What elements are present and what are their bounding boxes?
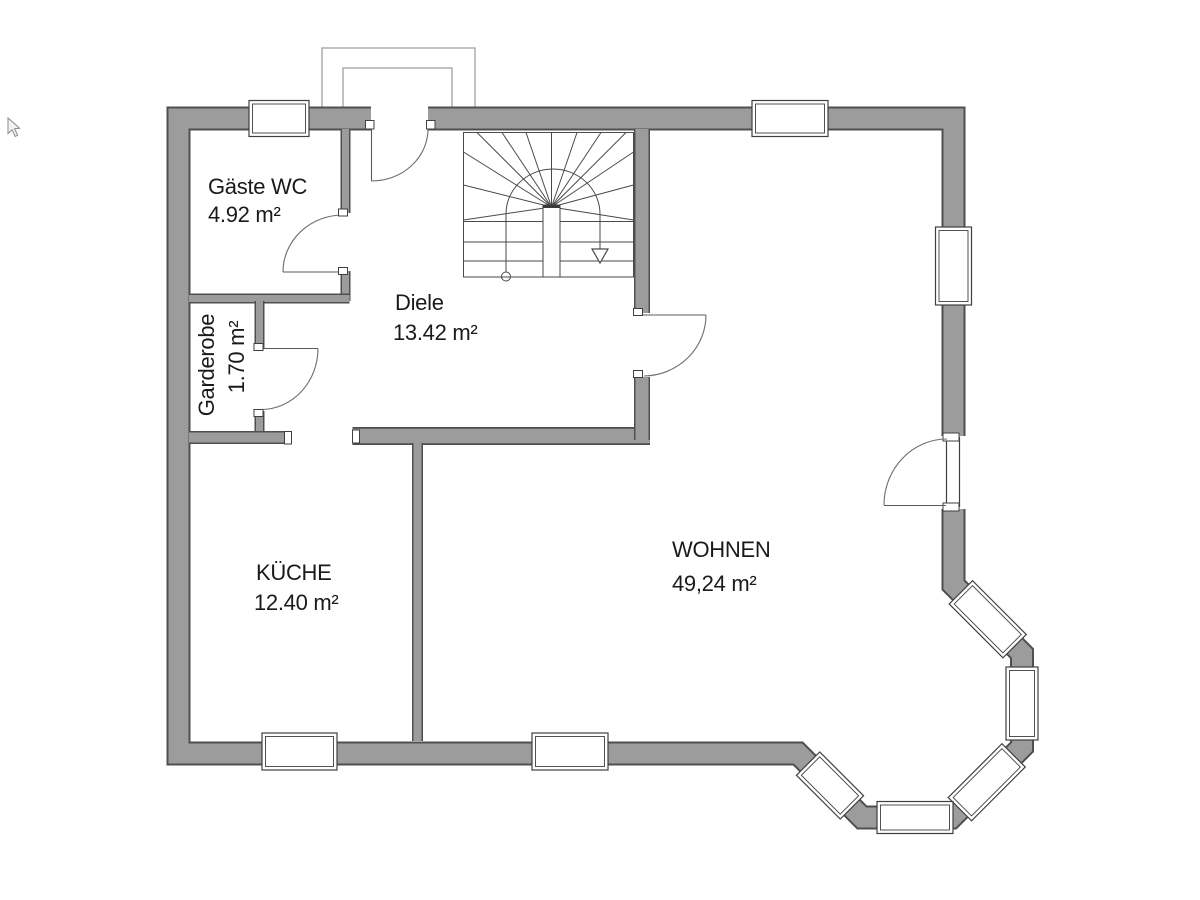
entrance-porch <box>322 48 475 108</box>
floor-plan-drawing: Gäste WC 4.92 m² Garderobe 1.70 m² Diele… <box>0 0 1200 900</box>
bay-window-2 <box>1006 667 1038 740</box>
door-swing-arc <box>884 439 947 505</box>
door-swing-arc <box>261 349 318 410</box>
door-jamb-cap <box>634 309 643 316</box>
door-jamb-cap <box>943 503 959 511</box>
wall-end-caps <box>285 430 360 444</box>
door-jamb-cap <box>339 209 348 216</box>
window-frame <box>949 581 1026 658</box>
room-label-kueche: KÜCHE <box>256 560 332 585</box>
wall-end-cap <box>353 430 360 443</box>
room-label-garderobe: Garderobe <box>194 314 219 417</box>
door-jamb-cap <box>634 371 643 378</box>
window-frame <box>249 101 309 137</box>
room-area-kueche: 12.40 m² <box>254 590 338 615</box>
door-jamb-cap <box>339 268 348 275</box>
window-frame <box>877 802 953 834</box>
bay-window-4 <box>877 802 953 834</box>
doors <box>254 121 960 512</box>
door-swing-arc <box>283 215 343 272</box>
window-frame <box>948 744 1025 821</box>
window-gaeste-wc <box>249 101 309 137</box>
mouse-cursor-icon <box>8 118 20 136</box>
staircase <box>464 133 634 282</box>
door-frame <box>947 438 960 507</box>
door-jamb-cap <box>366 121 375 130</box>
room-area-diele: 13.42 m² <box>393 320 477 345</box>
door-jamb-cap <box>254 344 263 351</box>
window-frame <box>532 733 608 770</box>
gaeste-wc-door <box>283 209 348 275</box>
diele-wohnen-door <box>634 309 707 378</box>
garderobe-door <box>254 344 318 417</box>
room-label-wohnen: WOHNEN <box>672 537 770 562</box>
room-label-gaeste-wc: Gäste WC <box>208 174 307 199</box>
window-frame <box>752 101 828 137</box>
window-frame <box>1006 667 1038 740</box>
wall-openings <box>371 105 967 509</box>
floor-plan-canvas: Gäste WC 4.92 m² Garderobe 1.70 m² Diele… <box>0 0 1200 900</box>
window-frame <box>936 227 972 305</box>
door-swing-arc <box>644 315 706 376</box>
porch-inner-outline <box>343 68 452 108</box>
room-area-wohnen: 49,24 m² <box>672 571 756 596</box>
terrace-door <box>884 433 960 511</box>
bay-window-1 <box>949 581 1026 658</box>
room-area-garderobe: 1.70 m² <box>224 321 249 393</box>
room-area-gaeste-wc: 4.92 m² <box>208 202 280 227</box>
bay-window-3 <box>948 744 1025 821</box>
door-jamb-cap <box>427 121 436 130</box>
window-wohnen-bottom <box>532 733 608 770</box>
door-jamb-cap <box>943 433 959 441</box>
entrance-opening <box>371 105 428 132</box>
door-jamb-cap <box>254 410 263 417</box>
wall-end-cap <box>285 432 292 445</box>
window-wohnen-top <box>752 101 828 137</box>
room-label-diele: Diele <box>395 290 444 315</box>
door-swing-arc <box>372 129 429 181</box>
window-wohnen-right <box>936 227 972 305</box>
stair-newel-post <box>543 205 560 277</box>
room-labels: Gäste WC 4.92 m² Garderobe 1.70 m² Diele… <box>194 174 770 615</box>
window-frame <box>262 733 337 770</box>
window-kueche-bottom <box>262 733 337 770</box>
